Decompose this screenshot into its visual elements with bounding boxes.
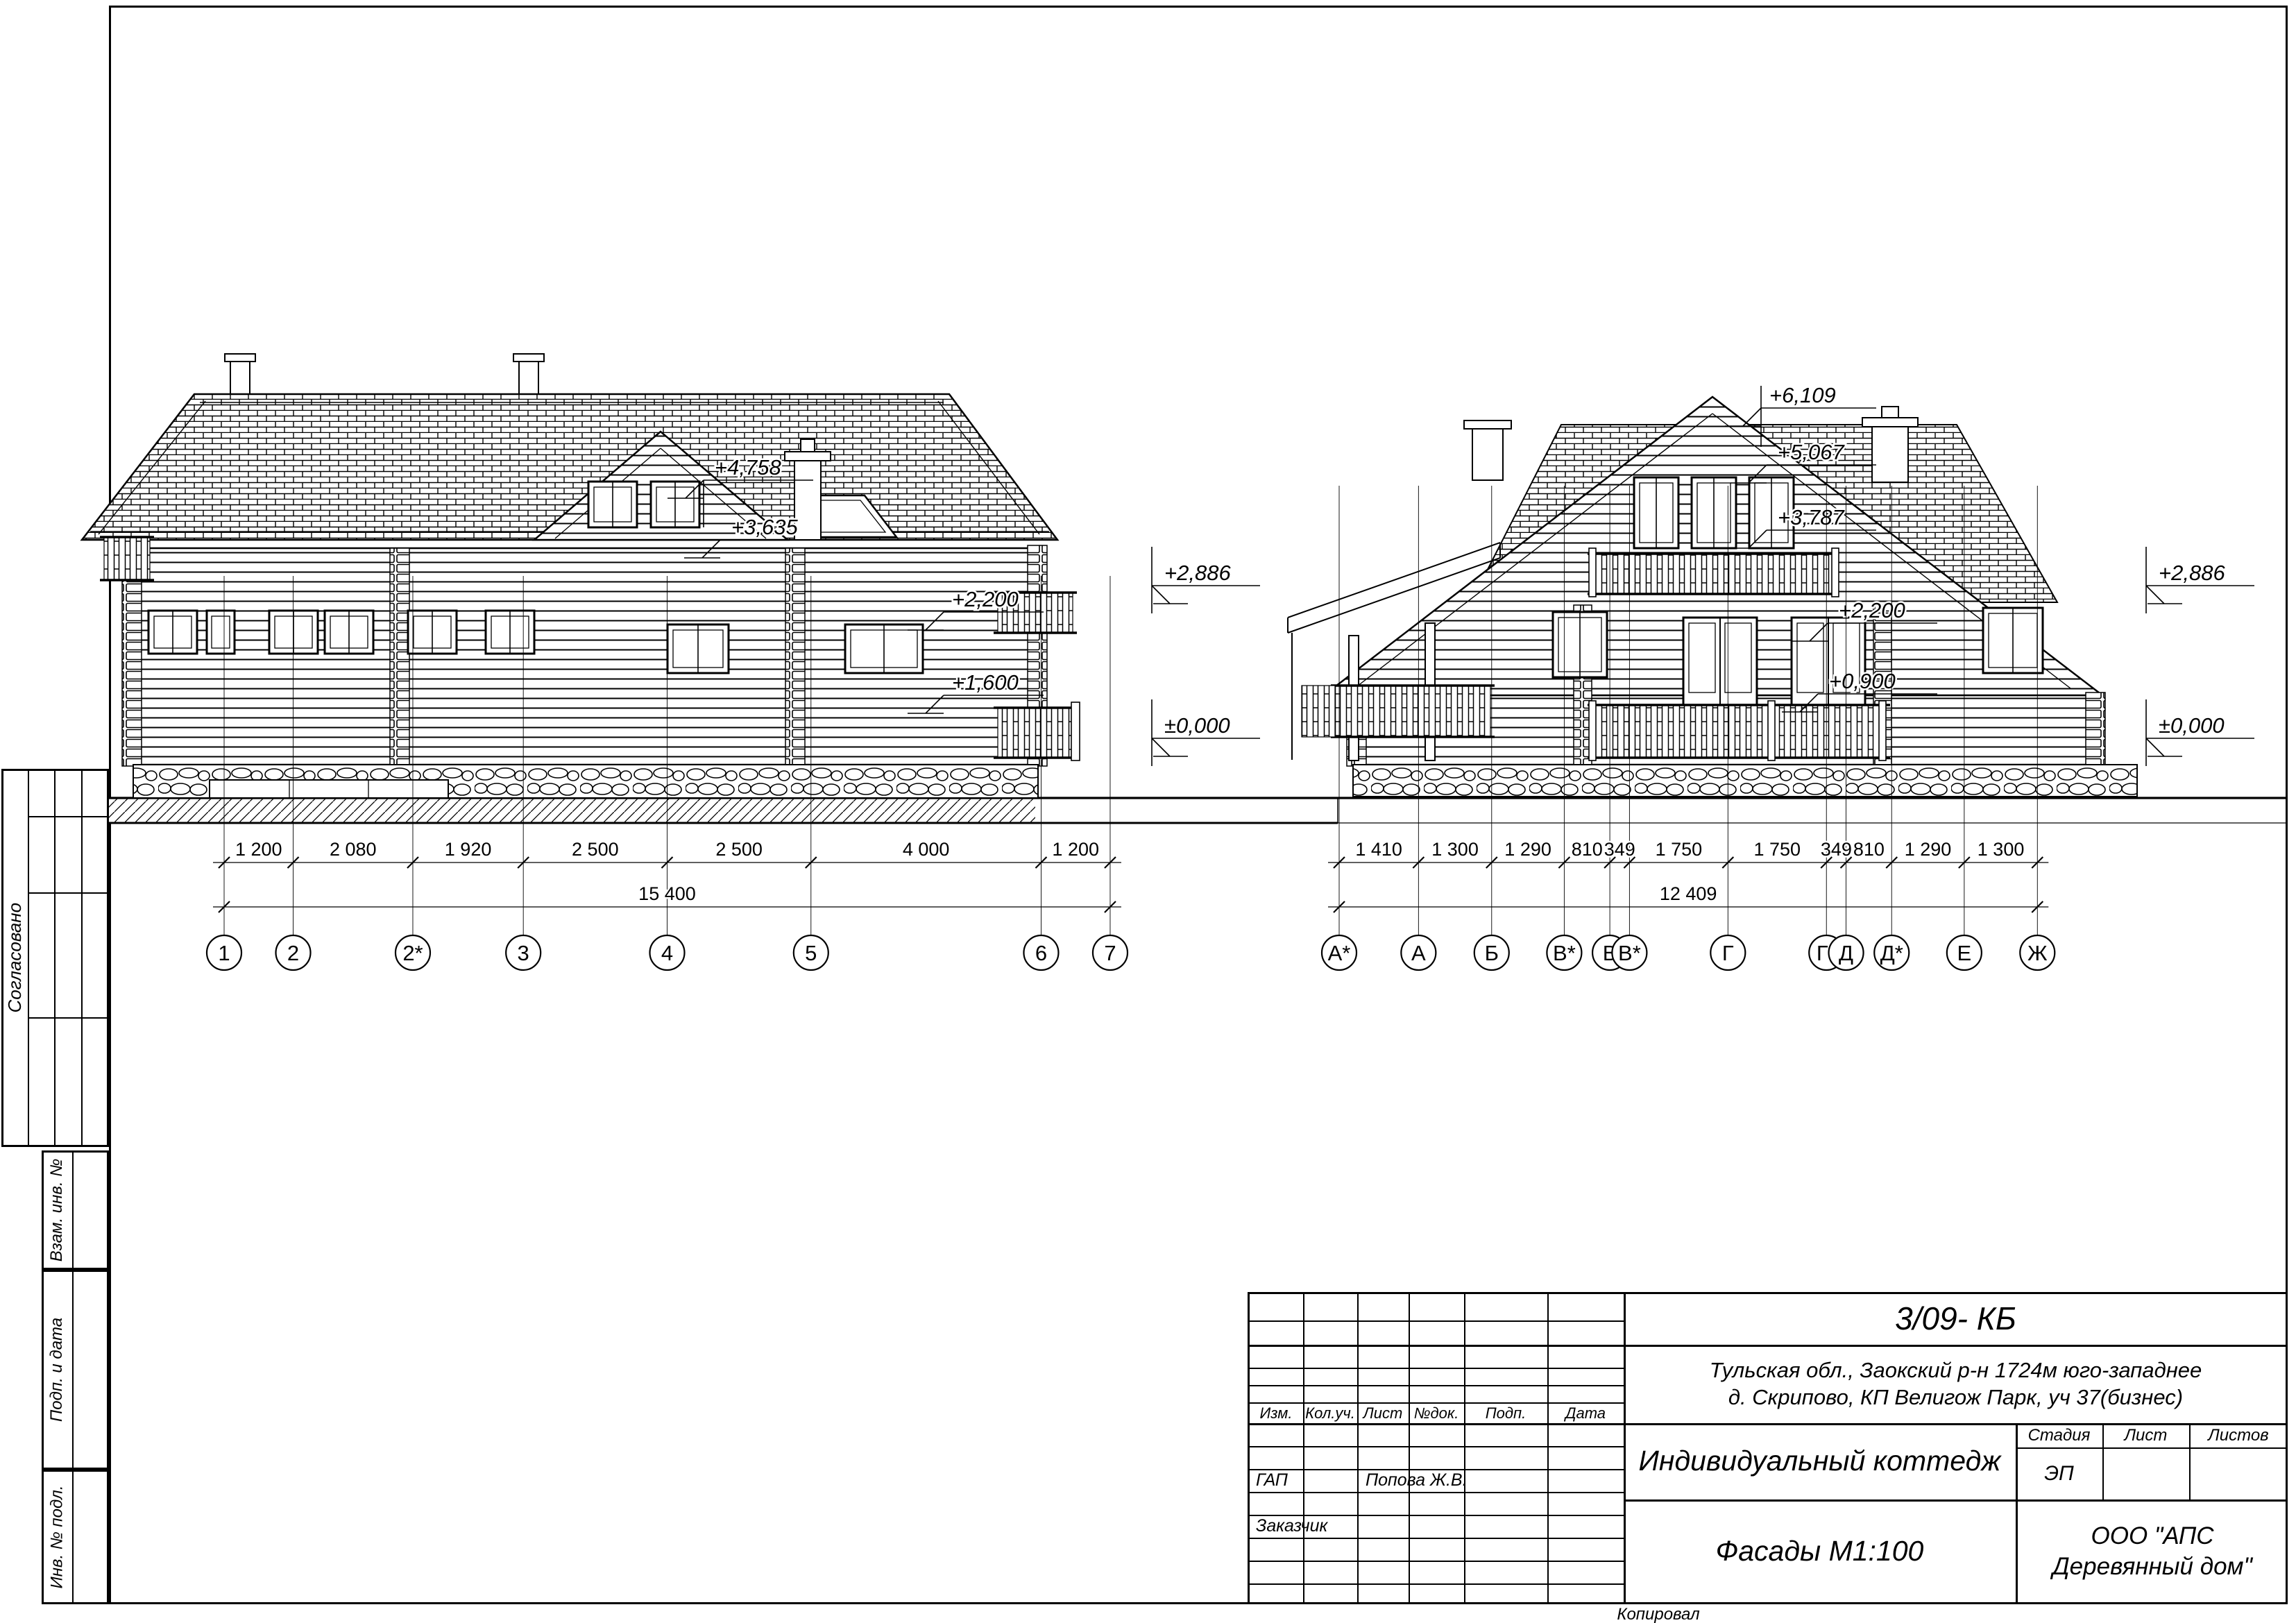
divider [72,1470,74,1604]
col-list: Лист [1359,1403,1407,1423]
axis-label: Б [1485,941,1499,965]
elevation-mark: +0,900 [1829,669,1896,693]
sheets-label: Листов [2191,1423,2286,1447]
axis-label: Ж [2027,941,2048,965]
foundation [1353,765,2137,797]
dormer-window [651,482,699,527]
col-koluch: Кол.уч. [1304,1403,1356,1423]
dimension-value: 1 290 [1504,839,1551,860]
axis-label: 6 [1035,941,1047,965]
divider [72,1270,74,1470]
window [1983,608,2043,673]
dimension-value: 1 750 [1656,839,1703,860]
col-data: Дата [1549,1403,1622,1423]
elevation-mark: +2,200 [1839,598,1905,622]
divider [1248,1345,2288,1347]
total-dimension-value: 15 400 [638,883,696,904]
divider [1303,1292,1304,1604]
divider [54,769,56,1147]
divider [72,1150,74,1270]
stage-label: Стадия [2017,1423,2101,1447]
axis-label: А [1411,941,1426,965]
customer-label: Заказчик [1249,1515,1409,1537]
dimension-value: 1 300 [1431,839,1479,860]
drawing-title: Фасады М1:100 [1627,1503,2012,1600]
railing [1331,686,1495,737]
divider [28,1017,109,1019]
log-end-column [785,548,805,765]
axis-label: 1 [218,941,230,965]
divider [1248,1446,1624,1447]
axis-label: 4 [661,941,673,965]
railing [994,702,1080,760]
divider [1248,1583,1624,1585]
dimension-value: 349 [1821,839,1852,860]
axis-label: 3 [518,941,529,965]
divider [1624,1292,1626,1604]
project-address: Тульская обл., Заокский р-н 1724м юго-за… [1627,1348,2284,1421]
window [667,624,729,673]
window [207,611,235,654]
divider [28,769,29,1147]
dimension-value: 810 [1572,839,1603,860]
window [148,611,197,654]
elevation-mark: +3,787 [1778,505,1845,529]
dimension-value: 1 290 [1905,839,1952,860]
elevation-mark: +1,600 [952,670,1019,695]
divider [1248,1320,1624,1322]
dimension-value: 1 300 [1978,839,2025,860]
divider [1624,1499,2288,1502]
chimney-icon [225,354,255,394]
log-end-column [390,548,409,765]
window [325,611,373,654]
elevation-mark: +2,886 [2159,561,2225,585]
window [1634,477,1678,548]
side-label-podp: Подп. и дата [42,1270,72,1470]
window [408,611,457,654]
total-dimension-value: 12 409 [1660,883,1717,904]
railing [100,537,154,580]
railing [1302,686,1335,737]
col-izm: Изм. [1249,1403,1303,1423]
elevation-mark: ±0,000 [1164,713,1230,738]
object-title: Индивидуальный коттедж [1627,1427,2012,1496]
dimension-value: 2 500 [715,839,763,860]
address-line-2: д. Скрипово, КП Велигож Парк, уч 37(бизн… [1728,1384,2183,1411]
side-label-inv: Инв. № подл. [42,1470,72,1604]
dimension-value: 1 920 [445,839,492,860]
axis-label: Д [1839,941,1853,965]
dimension-value: 349 [1604,839,1635,860]
divider [28,816,109,817]
divider [81,769,83,1147]
axis-label: Е [1957,941,1972,965]
elevation-mark: ±0,000 [2159,713,2225,738]
chimney-icon [513,354,544,394]
right-facade: +6,109 +5,067 +3,787 +2,200 +0,900 +2,88… [1288,383,2254,970]
stage-value: ЭП [2017,1449,2101,1498]
axis-label: 7 [1104,941,1116,965]
drawing-sheet: +4,758 +3,635 +2,200 +1,600 +2,886 ±0,00… [0,0,2296,1623]
window [845,624,923,673]
elevation-mark: +2,200 [952,587,1019,611]
divider [1409,1292,1410,1604]
railing [1588,701,1890,760]
dimension-value: 2 500 [572,839,619,860]
window [486,611,534,654]
ground [109,798,2287,823]
axis-label: Г [1722,941,1734,965]
dimension-value: 810 [1853,839,1885,860]
window [1553,612,1607,677]
chimney-icon [1464,420,1511,480]
log-end-column [2086,692,2105,766]
sheet-label: Лист [2104,1423,2188,1447]
copied-by-label: Копировал [1575,1606,1742,1623]
window [269,611,318,654]
divider [1248,1561,1624,1562]
document-code: 3/09- КБ [1627,1295,2284,1343]
dimension-value: 1 200 [235,839,282,860]
ground-hatch [109,799,1035,822]
divider [1248,1538,1624,1539]
elevation-mark: +4,758 [715,455,781,479]
address-line-1: Тульская обл., Заокский р-н 1724м юго-за… [1710,1357,2202,1384]
axis-label: А* [1328,941,1351,965]
side-label-approved: Согласовано [1,769,28,1147]
gap-label: ГАП [1249,1470,1356,1491]
divider [1248,1492,1624,1493]
entry-step [210,780,448,798]
divider [28,892,109,894]
dimension-value: 1 200 [1052,839,1099,860]
axis-label: В* [1618,941,1641,965]
window [1692,477,1736,548]
divider [1248,1368,1624,1369]
axis-label: 5 [805,941,817,965]
axis-label: 2* [402,941,423,965]
dimension-value: 1 410 [1355,839,1402,860]
divider [1547,1292,1549,1604]
elevation-mark: +6,109 [1769,383,1836,407]
dormer-window [588,482,637,527]
dimension-value: 4 000 [903,839,950,860]
company-name: ООО "АПС Деревянный дом" [2021,1503,2284,1600]
dimension-value: 2 080 [330,839,377,860]
gap-name: Попова Ж.В. [1359,1470,1546,1491]
axis-label: В* [1553,941,1576,965]
divider [1248,1385,1624,1386]
balcony-railing [1588,548,1839,597]
side-label-vzam: Взам. инв. № [42,1150,72,1270]
divider [1357,1292,1359,1604]
axis-label: 2 [287,941,299,965]
dimension-value: 1 750 [1753,839,1801,860]
elevation-mark: +3,635 [731,515,798,539]
divider [1464,1292,1465,1604]
axis-label: Д* [1880,941,1903,965]
col-ndok: №док. [1410,1403,1463,1423]
elevation-mark: +5,067 [1778,440,1845,464]
col-podp: Подп. [1465,1403,1546,1423]
elevation-mark: +2,886 [1164,561,1231,585]
left-facade: +4,758 +3,635 +2,200 +1,600 +2,886 ±0,00… [82,354,1260,970]
